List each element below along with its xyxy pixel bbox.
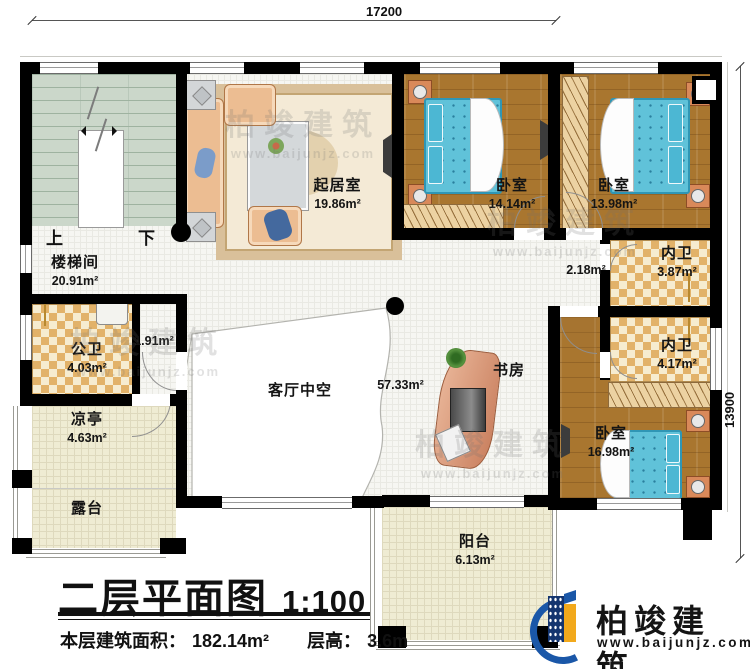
room-label-bedroom1: 卧室 14.14m² [468,176,556,212]
wall [548,62,560,240]
door-opening [566,228,602,240]
room-name: 内卫 [634,244,720,264]
exterior-line [727,62,728,512]
railing [26,549,166,559]
end-table [186,212,216,242]
room-area: 2.18m² [543,262,629,278]
end-table [186,80,216,110]
wall [20,294,186,304]
room-label-void: 客厅中空 [250,381,350,401]
window [222,497,352,509]
pillow [666,465,680,494]
tv-icon [383,134,392,178]
room-area: 3.87m² [634,264,720,280]
area-label-closet-small: 1.91m² [116,333,192,349]
pier [12,470,32,488]
window [300,62,364,74]
room-area: 57.33m² [358,377,443,393]
brand-logo: 柏竣建筑 www.baijunjz.com [530,592,744,662]
dimension-top-value: 17200 [366,4,402,19]
room-area: 19.86m² [290,196,385,212]
table-decor [268,138,284,154]
wardrobe [608,382,712,408]
room-label-balcony: 阳台 6.13m² [430,532,520,568]
exterior-line [20,56,722,57]
railing [370,500,378,646]
wall [352,496,384,508]
room-area: 4.03m² [48,360,126,376]
room-area: 13.98m² [570,196,658,212]
column [386,297,404,315]
room-name: 公卫 [48,340,126,360]
room-name: 书房 [474,361,544,381]
room-area: 20.91m² [30,273,120,289]
room-area: 16.98m² [566,444,656,460]
dimension-line-top [32,20,556,21]
pillow [428,104,443,142]
wall [20,360,32,406]
room-area: 1.91m² [116,333,192,349]
pillow [668,104,683,142]
room-label-public-bath: 公卫 4.03m² [48,340,126,376]
nightstand [686,410,710,432]
terrace-floor [32,489,176,548]
room-label-bath-top: 内卫 3.87m² [634,244,720,280]
dimension-line-right [740,66,741,558]
stair-arrow-icon [112,126,122,136]
door-opening [600,352,610,378]
column [171,222,191,242]
wall [176,390,187,508]
pier [683,507,712,540]
room-name: 客厅中空 [250,381,350,401]
window [430,496,524,508]
balcony-floor [382,507,552,640]
room-label-pavilion: 凉亭 4.63m² [48,410,126,446]
wall [548,317,560,510]
window [597,498,681,510]
room-name: 楼梯间 [30,253,120,273]
stair-down-label: 下 [138,224,155,249]
floor-area-value: 182.14m² [192,631,269,651]
room-name: 卧室 [566,424,656,444]
nightstand [686,476,710,498]
room-name: 露台 [48,499,126,519]
area-label-hall-small: 2.18m² [543,262,629,278]
window [20,315,32,360]
area-label-hall: 57.33m² [358,377,443,393]
terrace-divider-line [32,488,176,489]
logo-building-icon [548,596,564,642]
wall [20,62,32,245]
window [574,62,658,74]
wall [392,62,404,240]
room-label-study: 书房 [474,361,544,381]
title-subline: 本层建筑面积：182.14m²层高：3.6m [60,627,414,653]
room-label-bath-mid: 内卫 4.17m² [634,336,720,372]
title-underline-thin [58,619,370,620]
room-label-terrace: 露台 [48,499,126,519]
stair-up-label: 上 [46,224,63,249]
room-label-stairwell: 楼梯间 20.91m² [30,253,120,289]
door-opening [132,394,170,406]
door-opening [176,352,187,390]
dimension-right-value: 13900 [722,338,737,428]
window [420,62,500,74]
room-name: 凉亭 [48,410,126,430]
room-name: 起居室 [290,176,385,196]
pillow [666,434,680,463]
pillow [428,146,443,184]
brand-name: 柏竣建筑 [596,596,744,669]
stair-well-void [78,130,124,228]
room-area: 14.14m² [468,196,556,212]
logo-building-icon [564,604,576,642]
pillow [668,146,683,184]
room-name: 卧室 [468,176,556,196]
stair-arrow-icon [76,126,86,136]
room-name: 内卫 [634,336,720,356]
room-label-living: 起居室 19.86m² [290,176,385,212]
door-opening [560,306,598,317]
title-underline [58,612,370,616]
wall [176,62,187,226]
flue-duct [692,76,720,104]
window [190,62,244,74]
floor-height-label: 层高： [307,631,361,651]
pier [12,538,32,554]
window [40,62,98,74]
wall [710,62,722,510]
room-name: 阳台 [430,532,520,552]
floor-height-value: 3.6m [367,631,408,651]
floor-area-label: 本层建筑面积： [60,631,186,651]
door-opening [514,228,544,240]
brand-url: www.baijunjz.com [597,635,750,650]
room-label-bedroom2: 卧室 13.98m² [570,176,658,212]
room-label-bedroom3: 卧室 16.98m² [566,424,656,460]
armchair [224,84,276,126]
floor-plan: 柏竣建筑 www.baijunjz.com 柏竣建筑 www.baijunjz.… [0,0,750,669]
room-name: 卧室 [570,176,658,196]
room-area: 4.63m² [48,430,126,446]
pier [160,538,186,554]
wall [382,495,430,507]
room-area: 6.13m² [430,552,520,568]
plant-icon [446,348,466,368]
room-area: 4.17m² [634,356,720,372]
